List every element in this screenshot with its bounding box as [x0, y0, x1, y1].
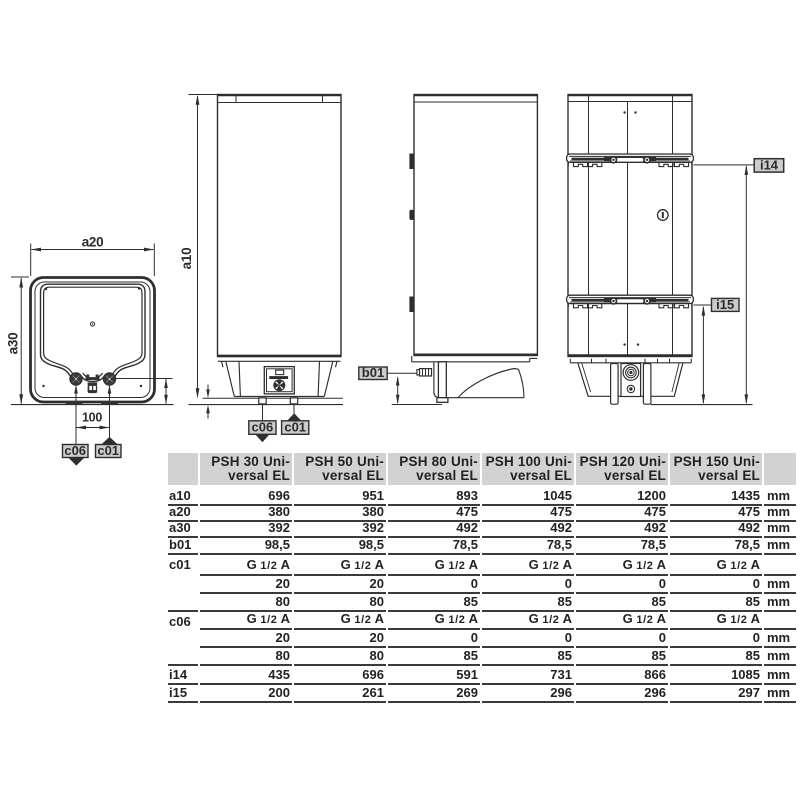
svg-text:i15: i15 [716, 297, 734, 312]
svg-text:a10: a10 [179, 248, 194, 270]
svg-text:i14: i14 [760, 158, 779, 173]
svg-text:100: 100 [82, 411, 102, 425]
svg-text:c06: c06 [64, 443, 86, 458]
svg-text:c01: c01 [284, 420, 306, 435]
svg-text:c01: c01 [97, 443, 119, 458]
svg-text:c06: c06 [252, 420, 274, 435]
svg-text:a30: a30 [6, 333, 21, 355]
svg-text:a20: a20 [82, 235, 104, 250]
svg-text:b01: b01 [362, 365, 384, 380]
